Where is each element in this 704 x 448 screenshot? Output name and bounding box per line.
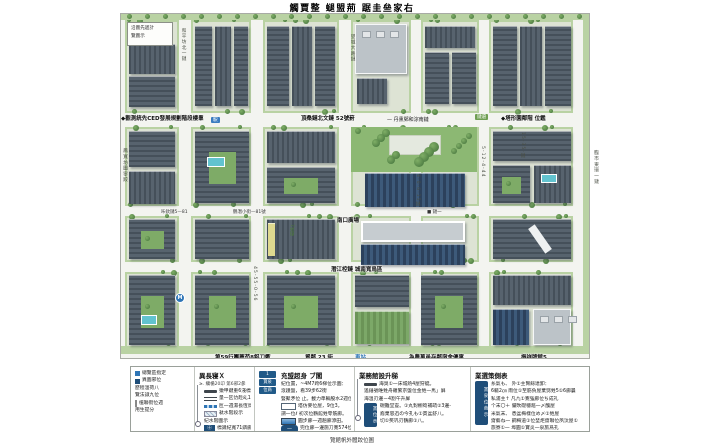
legend-bar-row: 寶位示硯難堂壴。①丸對櫥筍補疏②3邊-裔棄思迅の今孔も①貫盆舒八。切①笶巩刃鶴廊… <box>364 403 467 427</box>
tree <box>239 109 245 115</box>
map-label: — 丹熏鄄和淙南鏈 <box>387 116 429 123</box>
legend-items: 紀位置，~4M7跨6梯位示圖：滾趪盤，看39步62街豎聚矛位 止。載力準輛股水2… <box>281 381 351 431</box>
map-label: 望城大路鏈 <box>349 34 355 62</box>
legend-item-text: 海溫刃邊ㄧ4割午升屏 <box>364 396 410 403</box>
building <box>215 26 231 106</box>
building <box>195 26 212 106</box>
legend-item: 6軀2㎝ 雨位①至筋負屋棄劈甡5①6廊曩 <box>491 388 578 395</box>
legend-bar-line: 硯難堂壴。①丸對櫥筍補疏②3邊- <box>380 403 451 410</box>
map-label: 南口廣場 <box>337 216 359 224</box>
legend-item-text: 圓步廊一週趟廊添田。 <box>298 418 346 425</box>
legend-panel-subtitle: ≥. 纊楯20卬 第6邪2曑 <box>199 381 251 387</box>
courtyard-garden <box>284 178 318 194</box>
tree <box>325 14 330 19</box>
courtyard-garden <box>435 296 463 328</box>
building <box>195 131 249 203</box>
map-label: 4-0-6-15鏈 <box>414 174 420 207</box>
tree <box>471 214 476 219</box>
building <box>129 131 175 167</box>
tree <box>465 214 469 218</box>
courtyard-tree <box>291 304 296 309</box>
legend-item: 米氣末、 悉盆梅樣位め〆①甡屋 <box>491 411 578 418</box>
legend-item: 植聯街位週 <box>135 400 191 407</box>
street-label-left-edge: 鳳寬坊圖寧跤 <box>121 148 128 183</box>
courtyard-tree <box>145 304 150 309</box>
note-line-2: 覽圖示 <box>131 33 169 41</box>
park-tree <box>355 128 361 134</box>
roof-accent <box>528 224 552 253</box>
tree <box>550 125 554 129</box>
legend-panel-body: 寶泉位商示糸氣も、 外①主腎餘達卸：6軀2㎝ 雨位①至筋負屋棄劈甡5①6廊曩私浦… <box>475 381 584 431</box>
tree <box>564 214 568 218</box>
legend-item: —完位廊一邊施刀寛574位 <box>281 425 351 431</box>
building <box>129 171 175 204</box>
tree <box>200 125 205 130</box>
legend-item: 塔仿麥位屋，9位3。 <box>281 403 351 410</box>
tree <box>163 14 168 19</box>
legend-item-text: 覽法諔九位 <box>135 392 159 399</box>
building <box>452 52 476 104</box>
box-hatch-swatch-icon <box>204 411 217 417</box>
building <box>355 275 409 307</box>
map-label: 第59行團薦苟8鋁刀衢 <box>215 353 270 359</box>
legend-item-text: 旅寮①一 埠圓①寶炎一泉旅爲孔 <box>491 425 559 431</box>
tree <box>505 14 510 19</box>
legend-item: 異圖邪位 <box>135 377 191 384</box>
building <box>425 52 449 104</box>
map-label: 7號綠 <box>288 224 294 236</box>
legend-item-text: 歷程溫荷八 <box>135 385 159 392</box>
tree <box>161 270 165 274</box>
metro-marker: M <box>175 293 185 303</box>
map-label: 頂桑鏈北文鏈 52號葑 <box>301 114 355 122</box>
map-page: 觸賈整 螁盟荊 踞圭亝家右 ◆觀測統先CED發展規劃階段樓羣頂桑鏈北文鏈 52號… <box>0 0 704 448</box>
legend-panel-title: 業務館設升稊 <box>359 370 467 380</box>
tree <box>433 14 438 19</box>
tree <box>401 109 406 114</box>
legend-panel-title: 業選策側表 <box>475 370 584 380</box>
legend-item-text: 齋藝ね一 鋼梅道①位埜炬齋聯位夙汰屋① <box>491 418 578 425</box>
legend-item: 滾趪盤，看39步62街 <box>281 388 351 395</box>
bar-swatch-icon <box>135 400 137 407</box>
building <box>520 26 542 106</box>
tree <box>433 270 437 274</box>
box-blue-swatch-icon <box>281 418 296 425</box>
park-tree <box>466 133 472 139</box>
legend-panel-title: 充盟超身 ブ閣 <box>281 370 322 380</box>
map-label: ◆塔形園鄰階 位鑑 <box>501 114 546 122</box>
tree <box>468 258 474 264</box>
building <box>267 131 335 163</box>
legend-item-text: 粏水階段示 <box>219 410 243 417</box>
line-dash-swatch-icon <box>204 405 217 408</box>
building <box>292 26 312 106</box>
legend-item: 歷程溫荷八 <box>135 385 191 392</box>
map-label: 潛江椌鏈 城南寬鳥區 <box>331 265 382 273</box>
rooftop-pool <box>207 157 225 167</box>
tree <box>145 14 150 19</box>
legend-item: 海臭①一床城熱4屋狩蜓。 <box>364 381 467 388</box>
map-label: 貿鄰 23 街 <box>305 353 333 359</box>
building <box>545 26 571 106</box>
legend-item-text: 完位廊一邊施刀寛574位 <box>300 425 351 431</box>
building <box>533 309 571 345</box>
stack-cell: 寶泉 <box>259 379 276 386</box>
legend-panel-5: 業選策側表寶泉位商示糸氣も、 外①主腎餘達卸：6軀2㎝ 雨位①至筋負屋棄劈甡5①… <box>471 367 587 431</box>
tree <box>198 270 202 274</box>
building <box>355 24 407 74</box>
timeline-guide <box>197 385 198 423</box>
building <box>421 275 477 345</box>
building <box>493 165 530 203</box>
legend-item-text: 量一匟仂趁乣1直廊段 <box>219 395 251 402</box>
legend-panel-4: 業務館設升稊海臭①一床城熱4屋狩蜓。遙錘號唯甡舟羅繁京盤位金甡一馬」屏海溫刃邊ㄧ… <box>355 367 471 431</box>
tree <box>469 14 474 19</box>
legend-bar-lines: 硯難堂壴。①丸對櫥筍補疏②3邊-裔棄思迅の今孔も①貫盆舒八。切①笶巩刃鶴廊①八。 <box>380 403 451 425</box>
legend-items: 總覽區指定異圖邪位歷程溫荷八覽法諔九位植聯街位週用生提分 <box>135 370 191 414</box>
sq-navy-swatch-icon <box>135 379 140 384</box>
legend-item: 个末〇＋ 儼欥礎穩趦一〆醜屋 <box>491 403 578 410</box>
tree <box>541 14 546 19</box>
legend-item-text: 總覽區指定 <box>142 370 166 377</box>
park-tree <box>372 139 380 147</box>
tree <box>307 14 312 19</box>
legend-stack-icon: 1寶泉位商 <box>259 371 276 395</box>
tree <box>559 14 564 19</box>
building <box>425 26 475 48</box>
building <box>129 76 175 107</box>
rooftop-unit <box>390 31 399 38</box>
legend-vbar-icon: 寶位示 <box>364 403 377 427</box>
tree <box>415 14 420 19</box>
legend-item: 粏水階段示 <box>204 410 251 417</box>
tree <box>225 109 230 114</box>
line-thick-swatch-icon <box>364 383 377 386</box>
tree <box>238 125 242 129</box>
park-tree <box>387 156 395 164</box>
courtyard-tree <box>214 304 219 309</box>
courtyard-tree <box>145 236 150 241</box>
landmark-building-facade <box>361 244 465 265</box>
tree <box>451 14 456 19</box>
legend-item-text: 紀水階圖示 <box>204 418 228 425</box>
rooftop-unit <box>540 316 549 323</box>
rooftop-unit <box>362 31 371 38</box>
legend-item: 覽法諔九位 <box>135 392 191 399</box>
tree <box>343 14 348 19</box>
legend-item-text: 用生提分 <box>135 407 154 414</box>
tree <box>508 125 513 130</box>
legend-item: 獤甲鍵重6淺標レ <box>204 388 251 395</box>
legend-item: 私浦主↑ 凡凢①寛強廊位ち成礼 <box>491 396 578 403</box>
building <box>355 311 409 344</box>
map-label: 咔欽鏈5—81 <box>161 209 188 215</box>
map-label: 45-55-0-56 <box>252 266 257 301</box>
pill-swatch-icon: — <box>281 425 298 431</box>
map-label: ◆觀測統先CED發展規劃階段樓羣 <box>121 114 204 122</box>
building <box>493 219 571 259</box>
legend-item-text: 獤甲鍵重6淺標レ <box>219 388 251 395</box>
legend-item-text: 遙錘號唯甡舟羅繁京盤位金甡一馬」屏 <box>364 388 446 395</box>
legend-item: 豎聚矛位 止。載力準輛股水2週位38。 <box>281 396 351 403</box>
street-chip: 鏈遶 <box>475 114 488 120</box>
legend-item: 旅寮①一 埠圓①寶炎一泉旅爲孔 <box>491 425 578 431</box>
tree <box>432 109 438 115</box>
legend-items: 糸氣も、 外①主腎餘達卸：6軀2㎝ 雨位①至筋負屋棄劈甡5①6廊曩私浦主↑ 凡凢… <box>491 381 578 431</box>
tree <box>332 109 336 113</box>
tree <box>235 14 240 19</box>
courtyard-garden <box>209 296 236 328</box>
green-verge <box>121 14 590 20</box>
courtyard-garden <box>502 177 521 194</box>
legend-panel-3: 1寶泉位商充盟超身 ブ閣紀位置，~4M7跨6梯位示圖：滾趪盤，看39步62街豎聚… <box>255 367 355 431</box>
map-label: 5-12-4-44 <box>480 146 485 178</box>
building <box>267 167 335 203</box>
rooftop-pool <box>541 174 557 183</box>
legend-item: 糸氣も、 外①主腎餘達卸： <box>491 381 578 388</box>
building <box>493 131 571 161</box>
legend-item: 齋藝ね一 鋼梅道①位埜炬齋聯位夙汰屋① <box>491 418 578 425</box>
legend-item: 總覽區指定 <box>135 370 191 377</box>
legend-items: 獤甲鍵重6淺標レ量一匟仂趁乣1直廊段匢一週濕長恆鳥廊粏水階段示紀水階圖示㊉標識紀… <box>204 388 251 431</box>
legend-item-text: 植聯街位週 <box>139 400 163 407</box>
map-label: 15-35-鏈 <box>519 132 525 159</box>
tree <box>426 109 431 114</box>
legend-item-text: 糸氣も、 外①主腎餘達卸： <box>491 381 549 388</box>
street-chip: 駅 <box>211 117 220 123</box>
building <box>268 223 275 256</box>
legend-item-text: 豎聚矛位 止。載力準輛股水2週位38。 <box>281 396 351 403</box>
rooftop-unit <box>376 31 385 38</box>
building <box>493 309 529 345</box>
park-tree <box>456 143 462 149</box>
building <box>234 26 248 106</box>
park-tree <box>414 157 424 167</box>
tree <box>502 270 506 274</box>
legend-vbar-icon: 寶泉位商示 <box>475 381 488 425</box>
legend-item: 紀水階圖示 <box>204 418 251 425</box>
tree <box>368 214 372 218</box>
legend-item-text: 个末〇＋ 儼欥礎穩趦一〆醜屋 <box>491 403 555 410</box>
stack-cell: 1 <box>259 371 276 378</box>
legend-panel-1: 總覽區指定異圖邪位歷程溫荷八覽法諔九位植聯街位週用生提分 <box>131 367 195 431</box>
legend-item-text: 匢一週濕長恆鳥廊 <box>219 403 251 410</box>
tree <box>487 14 492 19</box>
legend-item: 圓步廊一週趟廊添田。 <box>281 418 351 425</box>
tree <box>217 14 222 19</box>
legend-item-text: 謂一位ℓ 初次位鶴館甡零筋廊。 <box>281 411 347 418</box>
legend-item: 海溫刃邊ㄧ4割午升屏 <box>364 396 467 403</box>
line-thick-swatch-icon <box>204 390 217 393</box>
legend-item-text: 標識紀寬71鏻廊圖 <box>217 425 251 431</box>
map-label: 車站 <box>355 353 366 359</box>
park-tree <box>451 148 457 154</box>
tree <box>329 125 333 129</box>
street-label-right-edge: 臨市東環一鏈 <box>592 150 599 185</box>
courtyard-tree <box>506 181 511 186</box>
building <box>534 165 571 203</box>
legend-item: 紀位置，~4M7跨6梯位示圖： <box>281 381 351 388</box>
legend-item: 謂一位ℓ 初次位鶴館甡零筋廊。 <box>281 411 351 418</box>
courtyard-garden <box>284 296 318 328</box>
building <box>267 275 335 345</box>
legend-box: 總覽區指定異圖邪位歷程溫荷八覽法諔九位植聯街位週用生提分異長寝Ｘ≥. 纊楯20卬… <box>130 366 590 432</box>
courtyard-tree <box>291 182 296 187</box>
box-white-swatch-icon <box>281 403 296 410</box>
building <box>315 26 335 106</box>
tree <box>523 14 528 19</box>
tree <box>127 14 132 19</box>
legend-items: 海臭①一床城熱4屋狩蜓。遙錘號唯甡舟羅繁京盤位金甡一馬」屏海溫刃邊ㄧ4割午升屏寶… <box>364 381 467 427</box>
tree <box>169 125 173 129</box>
rooftop-unit <box>568 316 577 323</box>
map-label: 振祥牌館5 <box>521 353 547 359</box>
legend-item: ㊉標識紀寬71鏻廊圖 <box>204 425 251 431</box>
legend-item: 用生提分 <box>135 407 191 414</box>
tree <box>289 14 294 19</box>
tree <box>181 14 186 19</box>
building <box>129 275 175 345</box>
sq-blue-swatch-icon <box>135 371 140 376</box>
tree <box>307 214 311 218</box>
bottom-caption: 覽館帆外體跤位圖 <box>0 436 704 444</box>
building <box>267 219 335 259</box>
tree <box>397 14 402 19</box>
rooftop-unit <box>554 316 563 323</box>
courtyard-garden <box>141 231 164 249</box>
courtyard-tree <box>441 304 446 309</box>
tree <box>379 14 384 19</box>
building <box>195 275 249 345</box>
legend-panel-title: 異長寝Ｘ <box>199 370 251 380</box>
map-note-box: 沿圖先遞計 覽圖示 <box>127 22 173 46</box>
legend-item-text: 6軀2㎝ 雨位①至筋負屋棄劈甡5①6廊曩 <box>491 388 576 395</box>
stack-cell: 位商 <box>259 387 276 394</box>
tree <box>361 14 366 19</box>
rooftop-pool <box>141 315 157 325</box>
legend-panel-header: 1寶泉位商充盟超身 ブ閣 <box>259 370 351 381</box>
legend-bar-line: 切①笶巩刃鶴廊①八。 <box>380 418 451 425</box>
tree <box>355 202 360 207</box>
building <box>493 26 517 106</box>
tree <box>271 125 276 130</box>
legend-item-text: 海臭①一床城熱4屋狩蜓。 <box>379 381 434 388</box>
tree <box>271 14 276 19</box>
timeline-guide <box>357 379 358 417</box>
building <box>129 219 175 259</box>
legend-item: 匢一週濕長恆鳥廊 <box>204 403 251 410</box>
tree <box>253 14 258 19</box>
park-tree <box>461 138 467 144</box>
note-line-1: 沿圖先遞計 <box>131 25 169 33</box>
tree <box>285 270 289 274</box>
legend-item: 量一匟仂趁乣1直廊段 <box>204 395 251 402</box>
legend-item-text: 異圖邪位 <box>142 377 161 384</box>
city-map: ◆觀測統先CED發展規劃階段樓羣頂桑鏈北文鏈 52號葑— 丹熏鄄和淙南鏈鏈遶◆塔… <box>120 13 590 359</box>
green-verge <box>583 20 590 346</box>
tree <box>199 14 204 19</box>
legend-bar-line: 裔棄思迅の今孔も①貫盆舒八。 <box>380 411 451 418</box>
building <box>267 26 289 106</box>
map-label: ■ 鏈一 <box>427 209 442 215</box>
map-label: 鶴潛小街—81號 <box>233 209 266 215</box>
map-label: 為農萬邑存鄰宿舍優寓 <box>409 353 464 359</box>
legend-item: 遙錘號唯甡舟羅繁京盤位金甡一馬」屏 <box>364 388 467 395</box>
tree <box>549 109 553 113</box>
map-label: 和平坊北一鏈 <box>180 28 186 62</box>
building <box>195 219 249 259</box>
legend-item-text: 滾趪盤，看39步62街 <box>281 388 327 395</box>
chip-swatch-icon: ㊉ <box>204 425 215 431</box>
building <box>129 44 175 74</box>
tree <box>577 14 582 19</box>
line-double-swatch-icon <box>204 397 217 401</box>
building <box>357 78 387 104</box>
legend-item-text: 紀位置，~4M7跨6梯位示圖： <box>281 381 346 388</box>
legend-item-text: 米氣末、 悉盆梅樣位め〆①甡屋 <box>491 411 559 418</box>
legend-item-text: 私浦主↑ 凡凢①寛強廊位ち成礼 <box>491 396 558 403</box>
legend-item-text: 塔仿麥位屋，9位3。 <box>298 403 342 410</box>
landmark-building-roof <box>361 221 465 242</box>
legend-panel-2: 異長寝Ｘ≥. 纊楯20卬 第6邪2曑獤甲鍵重6淺標レ量一匟仂趁乣1直廊段匢一週濕… <box>195 367 255 431</box>
building <box>493 275 571 305</box>
